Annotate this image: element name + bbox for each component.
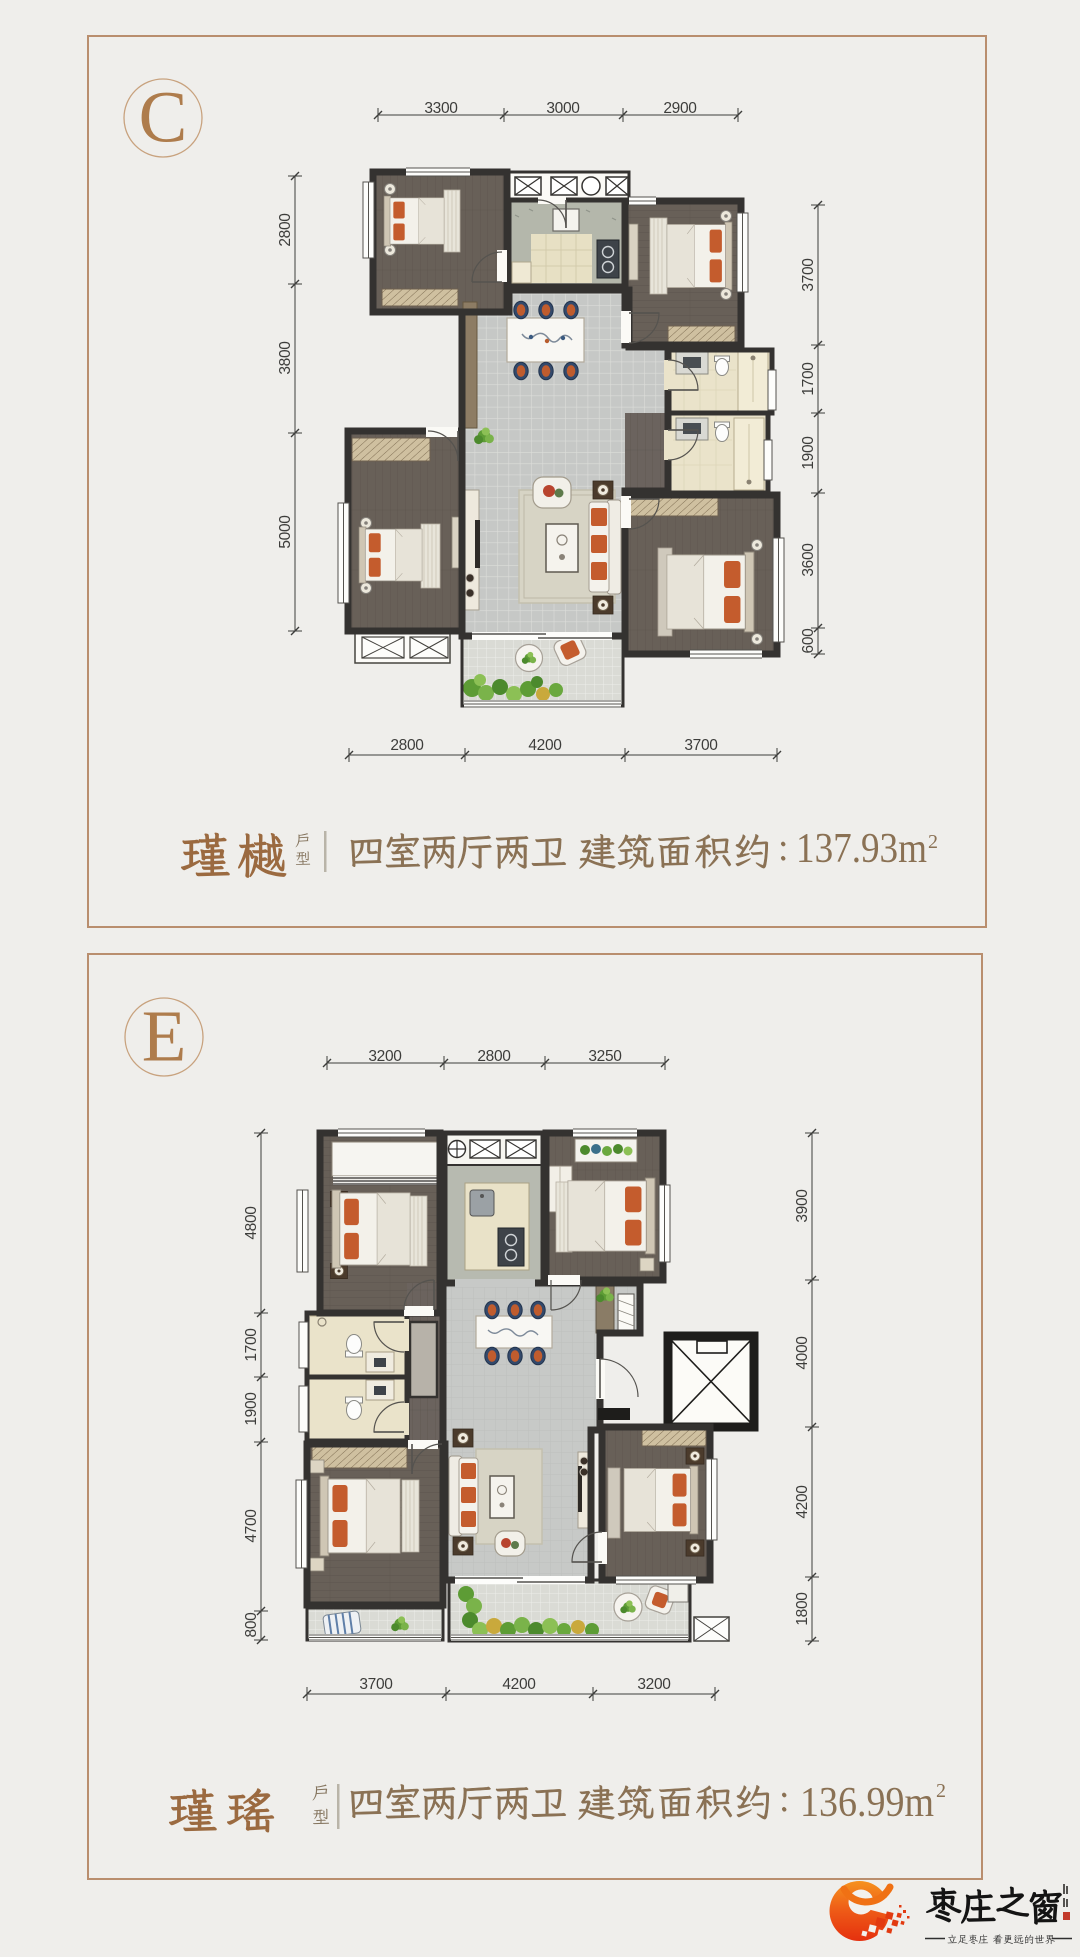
svg-text:C: C (139, 77, 188, 158)
svg-text:3900: 3900 (794, 1189, 811, 1223)
svg-text:4200: 4200 (528, 737, 562, 754)
svg-text:1900: 1900 (800, 436, 817, 470)
svg-text:4000: 4000 (794, 1336, 811, 1370)
svg-text:2: 2 (936, 1780, 946, 1802)
svg-text:1900: 1900 (243, 1392, 260, 1426)
svg-text:3200: 3200 (637, 1676, 671, 1693)
svg-text:4700: 4700 (243, 1509, 260, 1543)
svg-text:600: 600 (800, 628, 817, 654)
svg-text:136.99m: 136.99m (800, 1780, 934, 1826)
svg-text:137.93m: 137.93m (796, 826, 927, 872)
svg-text:1700: 1700 (243, 1328, 260, 1362)
svg-text:1700: 1700 (800, 362, 817, 396)
svg-text:3600: 3600 (800, 543, 817, 577)
svg-text:5000: 5000 (277, 515, 294, 549)
svg-text:3700: 3700 (684, 737, 718, 754)
svg-text:2800: 2800 (277, 213, 294, 247)
svg-text:3000: 3000 (546, 100, 580, 117)
svg-text:4200: 4200 (794, 1485, 811, 1519)
svg-text:800: 800 (243, 1612, 260, 1638)
svg-text:2900: 2900 (663, 100, 697, 117)
svg-text:3250: 3250 (588, 1048, 622, 1065)
svg-text:2: 2 (928, 831, 938, 853)
svg-text:3700: 3700 (359, 1676, 393, 1693)
svg-text:3700: 3700 (800, 258, 817, 292)
svg-text:3800: 3800 (277, 341, 294, 375)
svg-text:4800: 4800 (243, 1206, 260, 1240)
svg-text:3300: 3300 (424, 100, 458, 117)
svg-text:4200: 4200 (502, 1676, 536, 1693)
svg-text:2800: 2800 (477, 1048, 511, 1065)
svg-text:3200: 3200 (368, 1048, 402, 1065)
svg-text:1800: 1800 (794, 1592, 811, 1626)
svg-text:E: E (142, 996, 187, 1077)
svg-text:2800: 2800 (390, 737, 424, 754)
